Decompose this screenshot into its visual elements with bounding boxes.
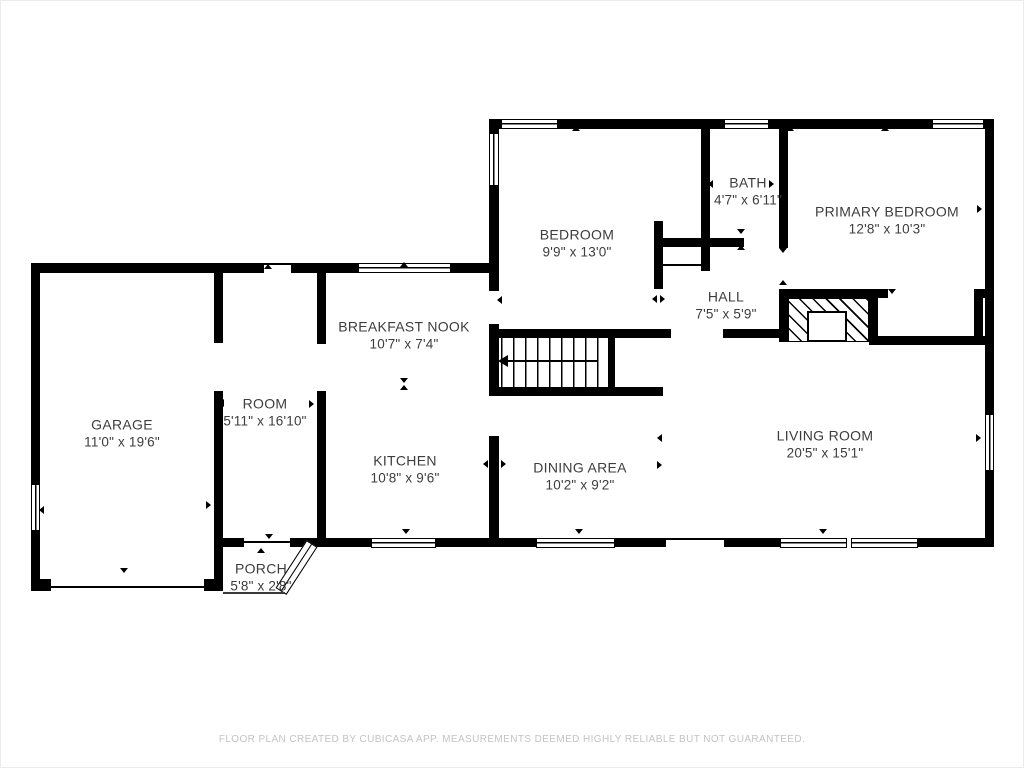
room-label-bedroom: BEDROOM 9'9" x 13'0" (540, 226, 614, 261)
opening-arrow-icon (575, 529, 583, 534)
wall-segment (489, 436, 499, 538)
wall-segment (779, 289, 888, 298)
opening-arrow-icon (786, 126, 794, 131)
wall-segment (654, 238, 744, 247)
wall-segment (974, 289, 983, 345)
opening-arrow-icon (400, 385, 408, 390)
opening-arrow-icon (977, 205, 982, 213)
opening-arrow-icon (402, 529, 410, 534)
opening-arrow-icon (120, 568, 128, 573)
wall-segment (654, 221, 663, 289)
window (536, 538, 615, 548)
threshold-line (666, 538, 724, 540)
wall-segment (985, 119, 994, 414)
threshold-line (244, 541, 290, 543)
wall-segment (31, 263, 264, 273)
opening-arrow-icon (660, 295, 665, 303)
opening-arrow-icon (265, 534, 273, 539)
room-label-living-room: LIVING ROOM 20'5" x 15'1" (777, 427, 874, 462)
opening-arrow-icon (206, 501, 211, 509)
wall-segment (489, 186, 499, 291)
wall-segment (31, 263, 40, 484)
wall-segment (214, 391, 223, 591)
opening-arrow-icon (501, 460, 506, 468)
room-label-primary-bedroom: PRIMARY BEDROOM 12'8" x 10'3" (815, 203, 959, 238)
opening-arrow-icon (737, 329, 745, 334)
wall-segment (723, 329, 784, 338)
window (851, 538, 918, 548)
wall-segment (317, 391, 326, 546)
room-label-breakfast-nook: BREAKFAST NOOK 10'7" x 7'4" (338, 318, 470, 353)
opening-arrow-icon (483, 460, 488, 468)
threshold-line (51, 586, 204, 588)
wall-segment (985, 471, 994, 547)
opening-arrow-icon (257, 548, 265, 553)
opening-arrow-icon (572, 126, 580, 131)
opening-arrow-icon (976, 434, 981, 442)
window (371, 538, 436, 548)
fireplace-firebox (807, 311, 847, 342)
opening-arrow-icon (652, 295, 657, 303)
opening-arrow-icon (572, 329, 580, 334)
wall-segment (214, 538, 244, 547)
wall-segment (317, 538, 371, 547)
window (985, 414, 994, 471)
stair-direction-arrow-icon (498, 355, 508, 367)
opening-arrow-icon (572, 388, 580, 393)
room-label-bath: BATH 4'7" x 6'11" (714, 174, 782, 209)
room-label-porch: PORCH 5'8" x 2'8" (230, 560, 291, 595)
wall-segment (608, 329, 615, 396)
wall-segment (436, 538, 498, 547)
staircase (501, 338, 608, 387)
opening-arrow-icon (120, 264, 128, 269)
opening-arrow-icon (737, 229, 745, 234)
room-label-room: ROOM 5'11" x 16'10" (223, 395, 306, 430)
wall-segment (214, 263, 223, 343)
stair-direction-line (507, 360, 597, 362)
opening-arrow-icon (881, 126, 889, 131)
wall-segment (779, 298, 788, 342)
wall-segment (701, 128, 710, 271)
wall-segment (489, 119, 499, 133)
room-label-kitchen: KITCHEN 10'8" x 9'6" (371, 452, 440, 487)
wall-segment (615, 538, 666, 547)
wall-segment (317, 263, 326, 344)
opening-arrow-icon (819, 529, 827, 534)
window (724, 119, 769, 129)
floor-plan: BEDROOM 9'9" x 13'0" BATH 4'7" x 6'11" P… (0, 0, 1024, 768)
opening-arrow-icon (779, 248, 787, 253)
footer-disclaimer: FLOOR PLAN CREATED BY CUBICASA APP. MEAS… (1, 734, 1023, 745)
opening-arrow-icon (657, 434, 662, 442)
wall-segment (451, 263, 498, 273)
opening-arrow-icon (657, 461, 662, 469)
wall-segment (31, 579, 51, 591)
opening-arrow-icon (708, 180, 713, 188)
opening-arrow-icon (779, 280, 787, 285)
opening-arrow-icon (888, 289, 896, 294)
threshold-line (663, 264, 701, 266)
wall-segment (878, 336, 986, 345)
wall-segment (558, 119, 724, 129)
opening-arrow-icon (39, 506, 44, 514)
wall-segment (724, 538, 780, 547)
wall-segment (869, 298, 878, 345)
wall-segment (918, 538, 994, 547)
opening-arrow-icon (400, 262, 408, 267)
room-label-garage: GARAGE 11'0" x 19'6" (84, 416, 160, 451)
window (932, 119, 984, 129)
opening-arrow-icon (264, 264, 272, 269)
opening-arrow-icon (400, 378, 408, 383)
opening-arrow-icon (737, 245, 745, 250)
window (501, 119, 558, 129)
opening-arrow-icon (309, 400, 314, 408)
window (780, 538, 847, 548)
wall-segment (493, 329, 671, 338)
room-label-dining-area: DINING AREA 10'2" x 9'2" (533, 459, 627, 494)
room-label-hall: HALL 7'5" x 5'9" (695, 288, 756, 323)
opening-arrow-icon (497, 296, 502, 304)
window (489, 133, 499, 186)
